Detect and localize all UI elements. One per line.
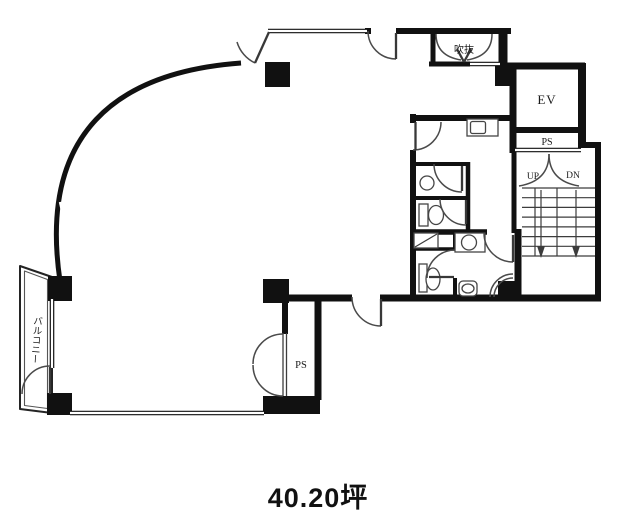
cleaning-sink bbox=[459, 281, 477, 296]
curve-mullion-2 bbox=[60, 202, 62, 211]
stairwell: UP DN bbox=[519, 154, 595, 258]
vestibule-basin bbox=[455, 233, 485, 252]
atrium-room: 吹抜 bbox=[454, 43, 474, 56]
door-top-wall bbox=[368, 31, 396, 59]
restroom-entry-door bbox=[413, 122, 441, 150]
pipe-space-upper-label: PS bbox=[541, 137, 552, 148]
door-south-wall bbox=[352, 297, 381, 326]
stall-door-2 bbox=[440, 199, 466, 225]
utility-niche bbox=[414, 233, 438, 248]
toilet-1 bbox=[419, 204, 444, 226]
atrium-label: 吹抜 bbox=[454, 43, 474, 56]
curve-mullion-1 bbox=[94, 133, 101, 140]
service-closet: PS bbox=[253, 333, 307, 396]
columns bbox=[47, 62, 517, 415]
stair-direction-arrows bbox=[537, 190, 580, 258]
stairs-up-label: UP bbox=[527, 172, 539, 182]
pipe-space-upper: PS bbox=[541, 137, 552, 148]
floor-plan-drawing: バルコニー bbox=[0, 0, 640, 524]
stall-door-1 bbox=[434, 164, 462, 192]
column-top-left bbox=[265, 62, 290, 87]
column-bottom-left bbox=[47, 393, 72, 415]
stairs-down-label: DN bbox=[566, 171, 580, 181]
elevator-label: EV bbox=[537, 92, 556, 107]
closet-double-doors bbox=[253, 334, 283, 396]
small-sink-round bbox=[420, 176, 434, 190]
curved-wall bbox=[56, 63, 241, 281]
wall-mass-closet-bottom bbox=[263, 396, 320, 414]
column-left-mid bbox=[48, 276, 72, 301]
washbasin-counter bbox=[467, 119, 498, 136]
stair-treads bbox=[522, 188, 595, 256]
floor-plan-page: バルコニー bbox=[0, 0, 640, 524]
area-label: 40.20坪 bbox=[268, 483, 369, 513]
pipe-space-closet-label: PS bbox=[295, 360, 307, 371]
restroom-block bbox=[411, 119, 513, 297]
balcony: バルコニー bbox=[20, 266, 52, 413]
vestibule-door bbox=[484, 233, 513, 262]
entrance-door-top-left bbox=[237, 32, 269, 63]
elevator-room: EV bbox=[537, 92, 556, 107]
